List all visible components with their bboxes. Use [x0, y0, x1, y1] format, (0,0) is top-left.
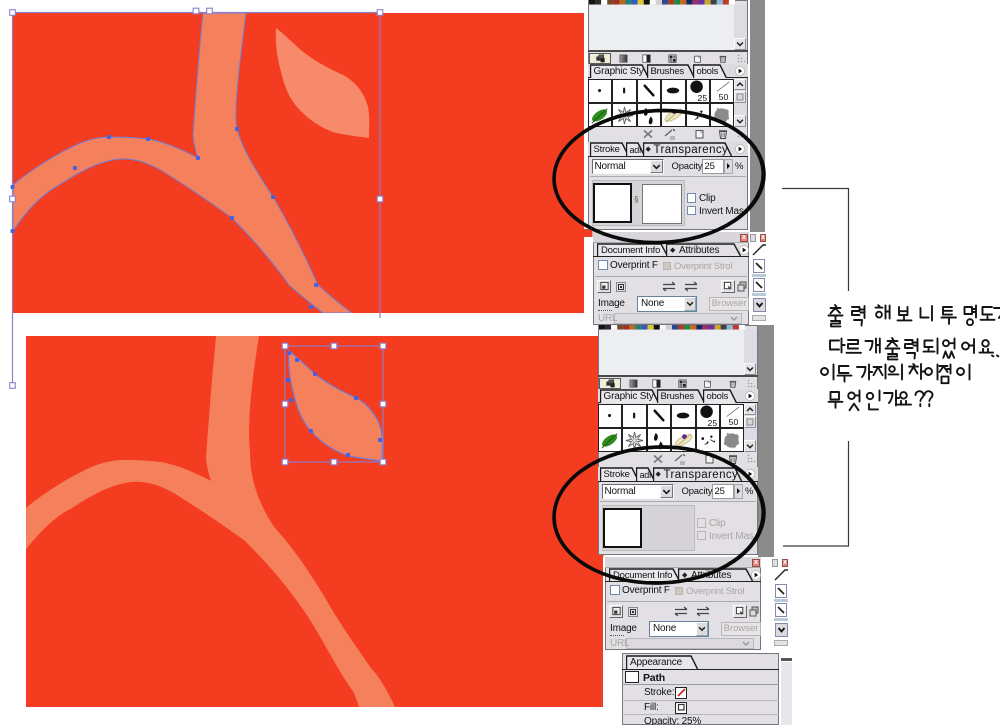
- svg-text:25: 25: [707, 418, 717, 428]
- svg-text:50: 50: [719, 92, 729, 102]
- svg-text:50: 50: [729, 417, 739, 427]
- svg-text:25: 25: [697, 93, 707, 103]
